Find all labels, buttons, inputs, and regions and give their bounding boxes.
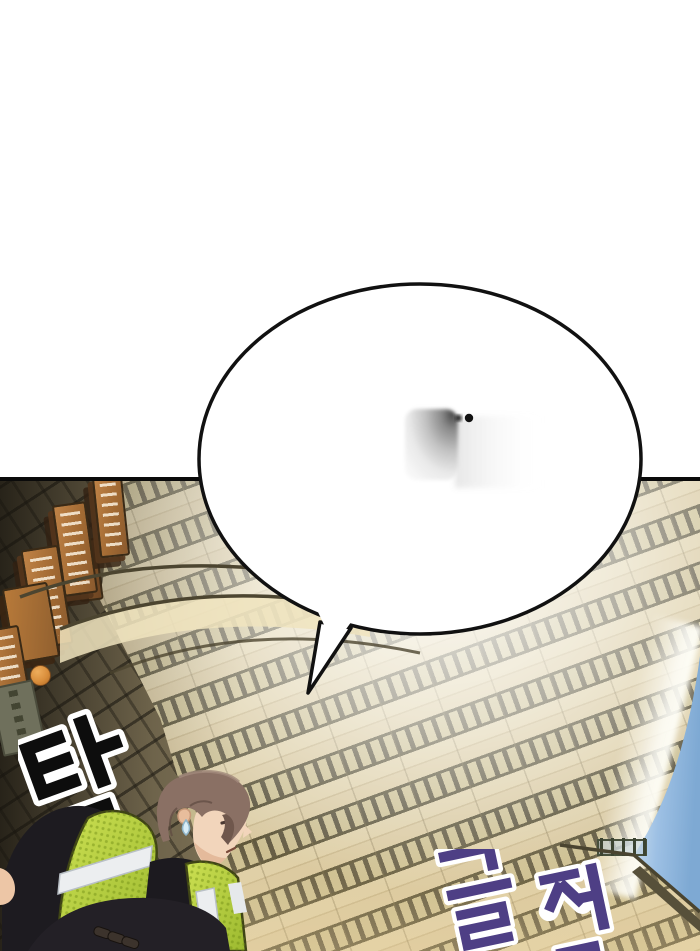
speech-bubble xyxy=(170,275,680,700)
dot xyxy=(465,414,473,422)
character xyxy=(0,770,300,951)
blurred-object xyxy=(405,409,545,488)
ear xyxy=(178,809,190,823)
sfx-scribble xyxy=(420,849,660,951)
webtoon-page xyxy=(0,0,700,951)
